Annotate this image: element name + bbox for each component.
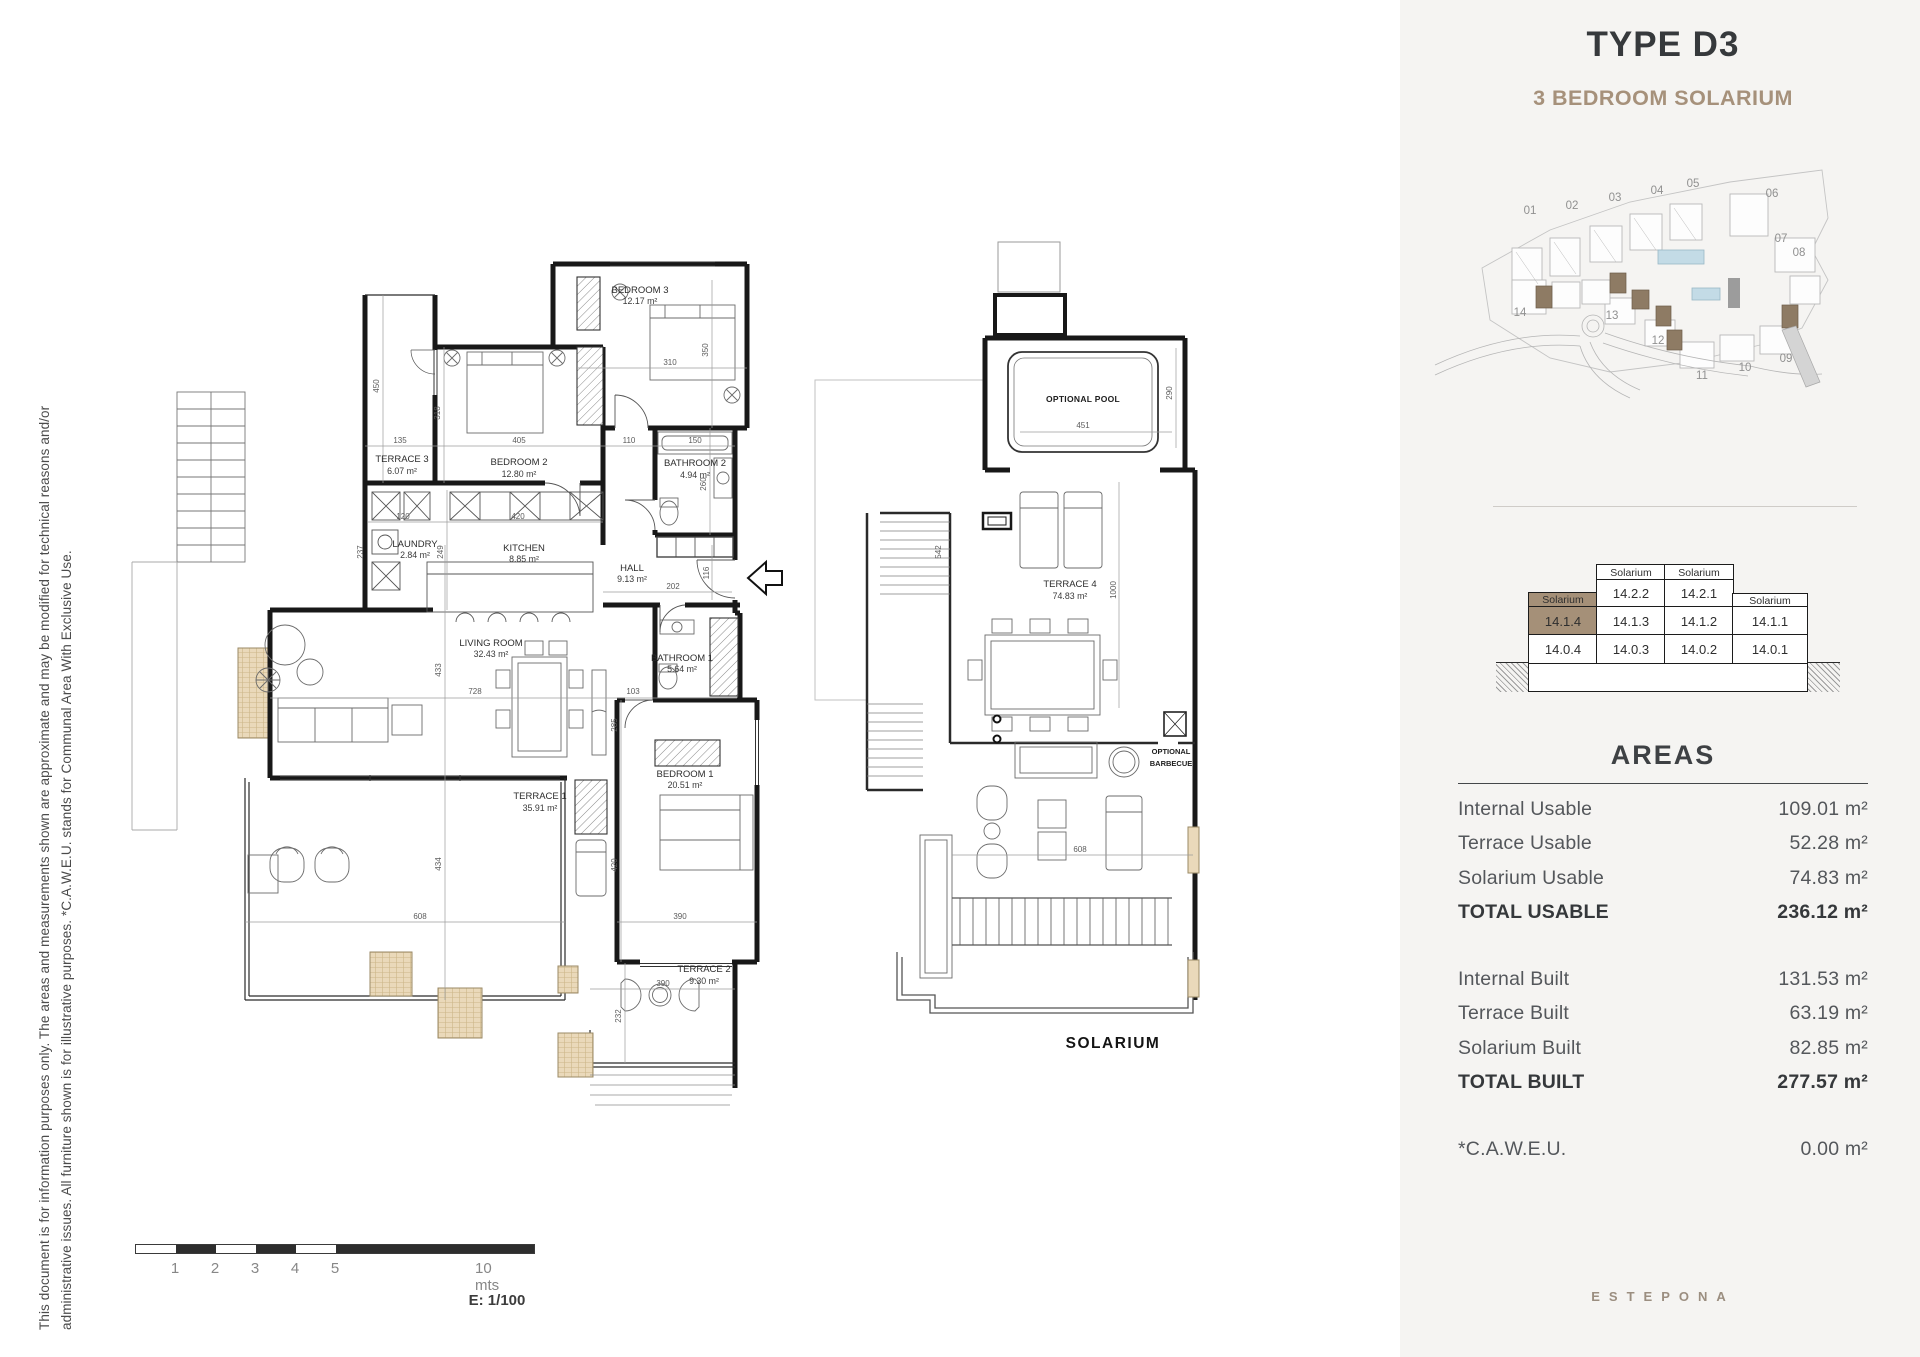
main-floor-plan: BEDROOM 3 12.17 m² TERRACE 3 6.07 m² BED… [120, 200, 790, 1150]
area-value: 74.83 m² [1789, 867, 1868, 890]
building-number: 04 [1651, 185, 1664, 197]
stack-unit: 14.2.1 [1664, 579, 1734, 608]
room-area: 8.85 m² [509, 554, 539, 564]
stack-unit: 14.2.2 [1596, 579, 1666, 608]
light-dots [994, 716, 1001, 743]
scale-bar: 1 2 3 4 5 10 mts E: 1/100 [135, 1244, 535, 1314]
room-label: TERRACE 1 [513, 791, 566, 802]
area-label: Solarium Built [1458, 1037, 1581, 1060]
terrace-pillars [370, 952, 593, 1077]
disclaimer-line-1: This document is for information purpose… [34, 40, 56, 1330]
area-label: *C.A.W.E.U. [1458, 1138, 1566, 1161]
area-total-row: TOTAL USABLE 236.12 m² [1458, 897, 1868, 927]
dim-label: 434 [434, 857, 443, 871]
area-caweu-row: *C.A.W.E.U. 0.00 m² [1458, 1134, 1868, 1164]
dim-label: 135 [393, 436, 407, 445]
room-label: BEDROOM 2 [490, 457, 547, 468]
room-label: BEDROOM 1 [656, 769, 713, 780]
dim-label: 420 [610, 858, 619, 872]
area-row: Internal Built 131.53 m² [1458, 964, 1868, 994]
room-label: LIVING ROOM [459, 638, 522, 649]
scale-tick: 4 [291, 1260, 299, 1277]
site-court [1728, 278, 1740, 308]
page-title: TYPE D3 [1458, 25, 1868, 65]
area-row: Solarium Usable 74.83 m² [1458, 863, 1868, 893]
stack-unit: 14.1.2 [1664, 606, 1734, 636]
barbecue-unit [1164, 712, 1186, 736]
site-pools [1658, 250, 1720, 300]
building-number: 05 [1687, 178, 1700, 190]
areas-rule [1458, 783, 1868, 784]
dim-label: 120 [396, 512, 410, 521]
room-area: 20.51 m² [668, 780, 703, 790]
area-value: 52.28 m² [1789, 832, 1868, 855]
ground-hatch [1496, 662, 1530, 692]
building-number: 03 [1609, 192, 1622, 204]
dim-label: 290 [1165, 386, 1174, 400]
area-value: 131.53 m² [1778, 968, 1868, 991]
area-label: Terrace Usable [1458, 832, 1592, 855]
room-area: 6.07 m² [387, 466, 417, 476]
dim-label: 202 [666, 582, 680, 591]
planter-pillar [238, 648, 272, 738]
building-number: 13 [1606, 310, 1619, 322]
steps [590, 1075, 735, 1105]
room-label: LAUNDRY [392, 539, 438, 550]
dim-label: 451 [1076, 421, 1090, 430]
solarium-title: SOLARIUM [1066, 1035, 1161, 1052]
railings [245, 295, 735, 1067]
dim-label: 450 [372, 379, 381, 393]
room-area: 9.13 m² [617, 574, 647, 584]
room-area: 2.84 m² [400, 550, 430, 560]
dim-label: 285 [610, 718, 619, 732]
panel-divider [1493, 506, 1857, 507]
solarium-plan: OPTIONAL POOL 451 290 TERRACE 4 74.83 m²… [780, 230, 1260, 1060]
dim-label: 310 [663, 358, 677, 367]
area-label: TOTAL BUILT [1458, 1071, 1584, 1094]
dim-label: 232 [614, 1009, 623, 1023]
room-label: BATHROOM 1 [651, 653, 713, 664]
scale-tick: 1 [171, 1260, 179, 1277]
area-value: 236.12 m² [1777, 901, 1868, 924]
dim-label: 237 [356, 545, 365, 559]
scale-end-label: 10 mts [475, 1260, 515, 1294]
room-area: 32.43 m² [474, 649, 509, 659]
stack-unit: 14.0.3 [1596, 634, 1666, 664]
area-label: Solarium Usable [1458, 867, 1604, 890]
scale-ratio: E: 1/100 [427, 1292, 567, 1309]
room-label: BEDROOM 3 [611, 285, 668, 296]
dim-label: 249 [436, 545, 445, 559]
brand-estepona: ESTEPONA [1458, 1289, 1868, 1304]
dim-label: 608 [413, 912, 427, 921]
stair-treads [867, 522, 950, 776]
area-row: Internal Usable 109.01 m² [1458, 794, 1868, 824]
building-number: 07 [1775, 233, 1788, 245]
building-number: 06 [1766, 188, 1779, 200]
sol-dim-lines [952, 348, 1193, 855]
area-value: 82.85 m² [1789, 1037, 1868, 1060]
barbecue-label: OPTIONAL [1152, 747, 1191, 756]
area-value: 0.00 m² [1800, 1138, 1868, 1161]
area-value: 109.01 m² [1778, 798, 1868, 821]
dim-label: 390 [656, 979, 670, 988]
dim-label: 542 [934, 545, 943, 559]
dim-label: 103 [626, 687, 640, 696]
room-label: HALL [620, 563, 644, 574]
building-number: 11 [1696, 370, 1708, 382]
disclaimer-line-2: administrative issues. All furniture sho… [56, 40, 78, 1330]
dim-label: 318 [433, 406, 442, 420]
stack-unit: 14.0.4 [1528, 634, 1598, 664]
room-label: KITCHEN [503, 543, 545, 554]
page-subtitle: 3 BEDROOM SOLARIUM [1458, 86, 1868, 111]
dim-label: 260 [699, 477, 708, 491]
room-area: 74.83 m² [1053, 591, 1088, 601]
dim-label: 1000 [1109, 581, 1118, 599]
building-number: 14 [1514, 307, 1527, 319]
dim-label: 608 [1073, 845, 1087, 854]
disclaimer: This document is for information purpose… [34, 40, 82, 1340]
skylight [983, 513, 1011, 529]
dim-label: 110 [623, 436, 636, 445]
room-area: 5.64 m² [667, 664, 697, 674]
scale-tick: 2 [211, 1260, 219, 1277]
room-label: TERRACE 4 [1043, 579, 1096, 590]
dim-label: 728 [468, 687, 482, 696]
area-label: Internal Usable [1458, 798, 1592, 821]
pool-label: OPTIONAL POOL [1046, 394, 1120, 404]
dim-label: 433 [434, 663, 443, 677]
entrance-arrow-icon [748, 562, 782, 594]
area-row: Terrace Usable 52.28 m² [1458, 828, 1868, 858]
area-row: Solarium Built 82.85 m² [1458, 1033, 1868, 1063]
stack-unit: 14.0.2 [1664, 634, 1734, 664]
area-label: Terrace Built [1458, 1002, 1569, 1025]
building-number: 10 [1739, 362, 1752, 374]
area-row: Terrace Built 63.19 m² [1458, 998, 1868, 1028]
room-label: TERRACE 3 [375, 454, 428, 465]
barbecue-label: BARBECUE [1150, 759, 1193, 768]
hall-closet [657, 537, 733, 557]
building-number: 09 [1780, 353, 1793, 365]
dim-label: 116 [702, 566, 711, 579]
communal-stairs [132, 392, 245, 830]
room-area: 9.30 m² [689, 976, 719, 986]
room-area: 35.91 m² [523, 803, 558, 813]
building-number: 02 [1566, 200, 1579, 212]
area-value: 277.57 m² [1777, 1071, 1868, 1094]
stack-unit: 14.1.3 [1596, 606, 1666, 636]
room-label: TERRACE 2 [677, 964, 730, 975]
dim-label: 150 [688, 436, 702, 445]
dim-label: 350 [701, 343, 710, 357]
dim-label: 420 [511, 512, 525, 521]
room-area: 12.80 m² [502, 469, 537, 479]
stack-basement [1528, 662, 1808, 692]
building-number: 08 [1793, 247, 1806, 259]
scale-tick: 3 [251, 1260, 259, 1277]
stack-unit-highlighted: 14.1.4 [1528, 606, 1598, 636]
dim-label: 390 [673, 912, 687, 921]
stack-unit: 14.0.1 [1732, 634, 1808, 664]
stack-unit: 14.1.1 [1732, 606, 1808, 636]
area-total-row: TOTAL BUILT 277.57 m² [1458, 1067, 1868, 1097]
bottom-boundary [897, 952, 1193, 1013]
chimney-block [995, 295, 1065, 335]
site-plan: 01 02 03 04 05 06 07 08 09 10 11 12 13 1… [1430, 130, 1830, 405]
area-label: Internal Built [1458, 968, 1569, 991]
chimney [998, 242, 1060, 292]
building-number: 12 [1652, 335, 1665, 347]
area-label: TOTAL USABLE [1458, 901, 1609, 924]
scale-bar-segments [135, 1244, 535, 1254]
scale-tick: 5 [331, 1260, 339, 1277]
dim-label: 405 [512, 436, 526, 445]
area-value: 63.19 m² [1789, 1002, 1868, 1025]
ground-hatch [1806, 662, 1840, 692]
pergola [952, 898, 1172, 945]
building-number: 01 [1524, 205, 1537, 217]
room-area: 12.17 m² [623, 296, 658, 306]
areas-title: AREAS [1458, 740, 1868, 771]
solarium-furniture-lower [920, 742, 1142, 978]
room-label: BATHROOM 2 [664, 458, 726, 469]
